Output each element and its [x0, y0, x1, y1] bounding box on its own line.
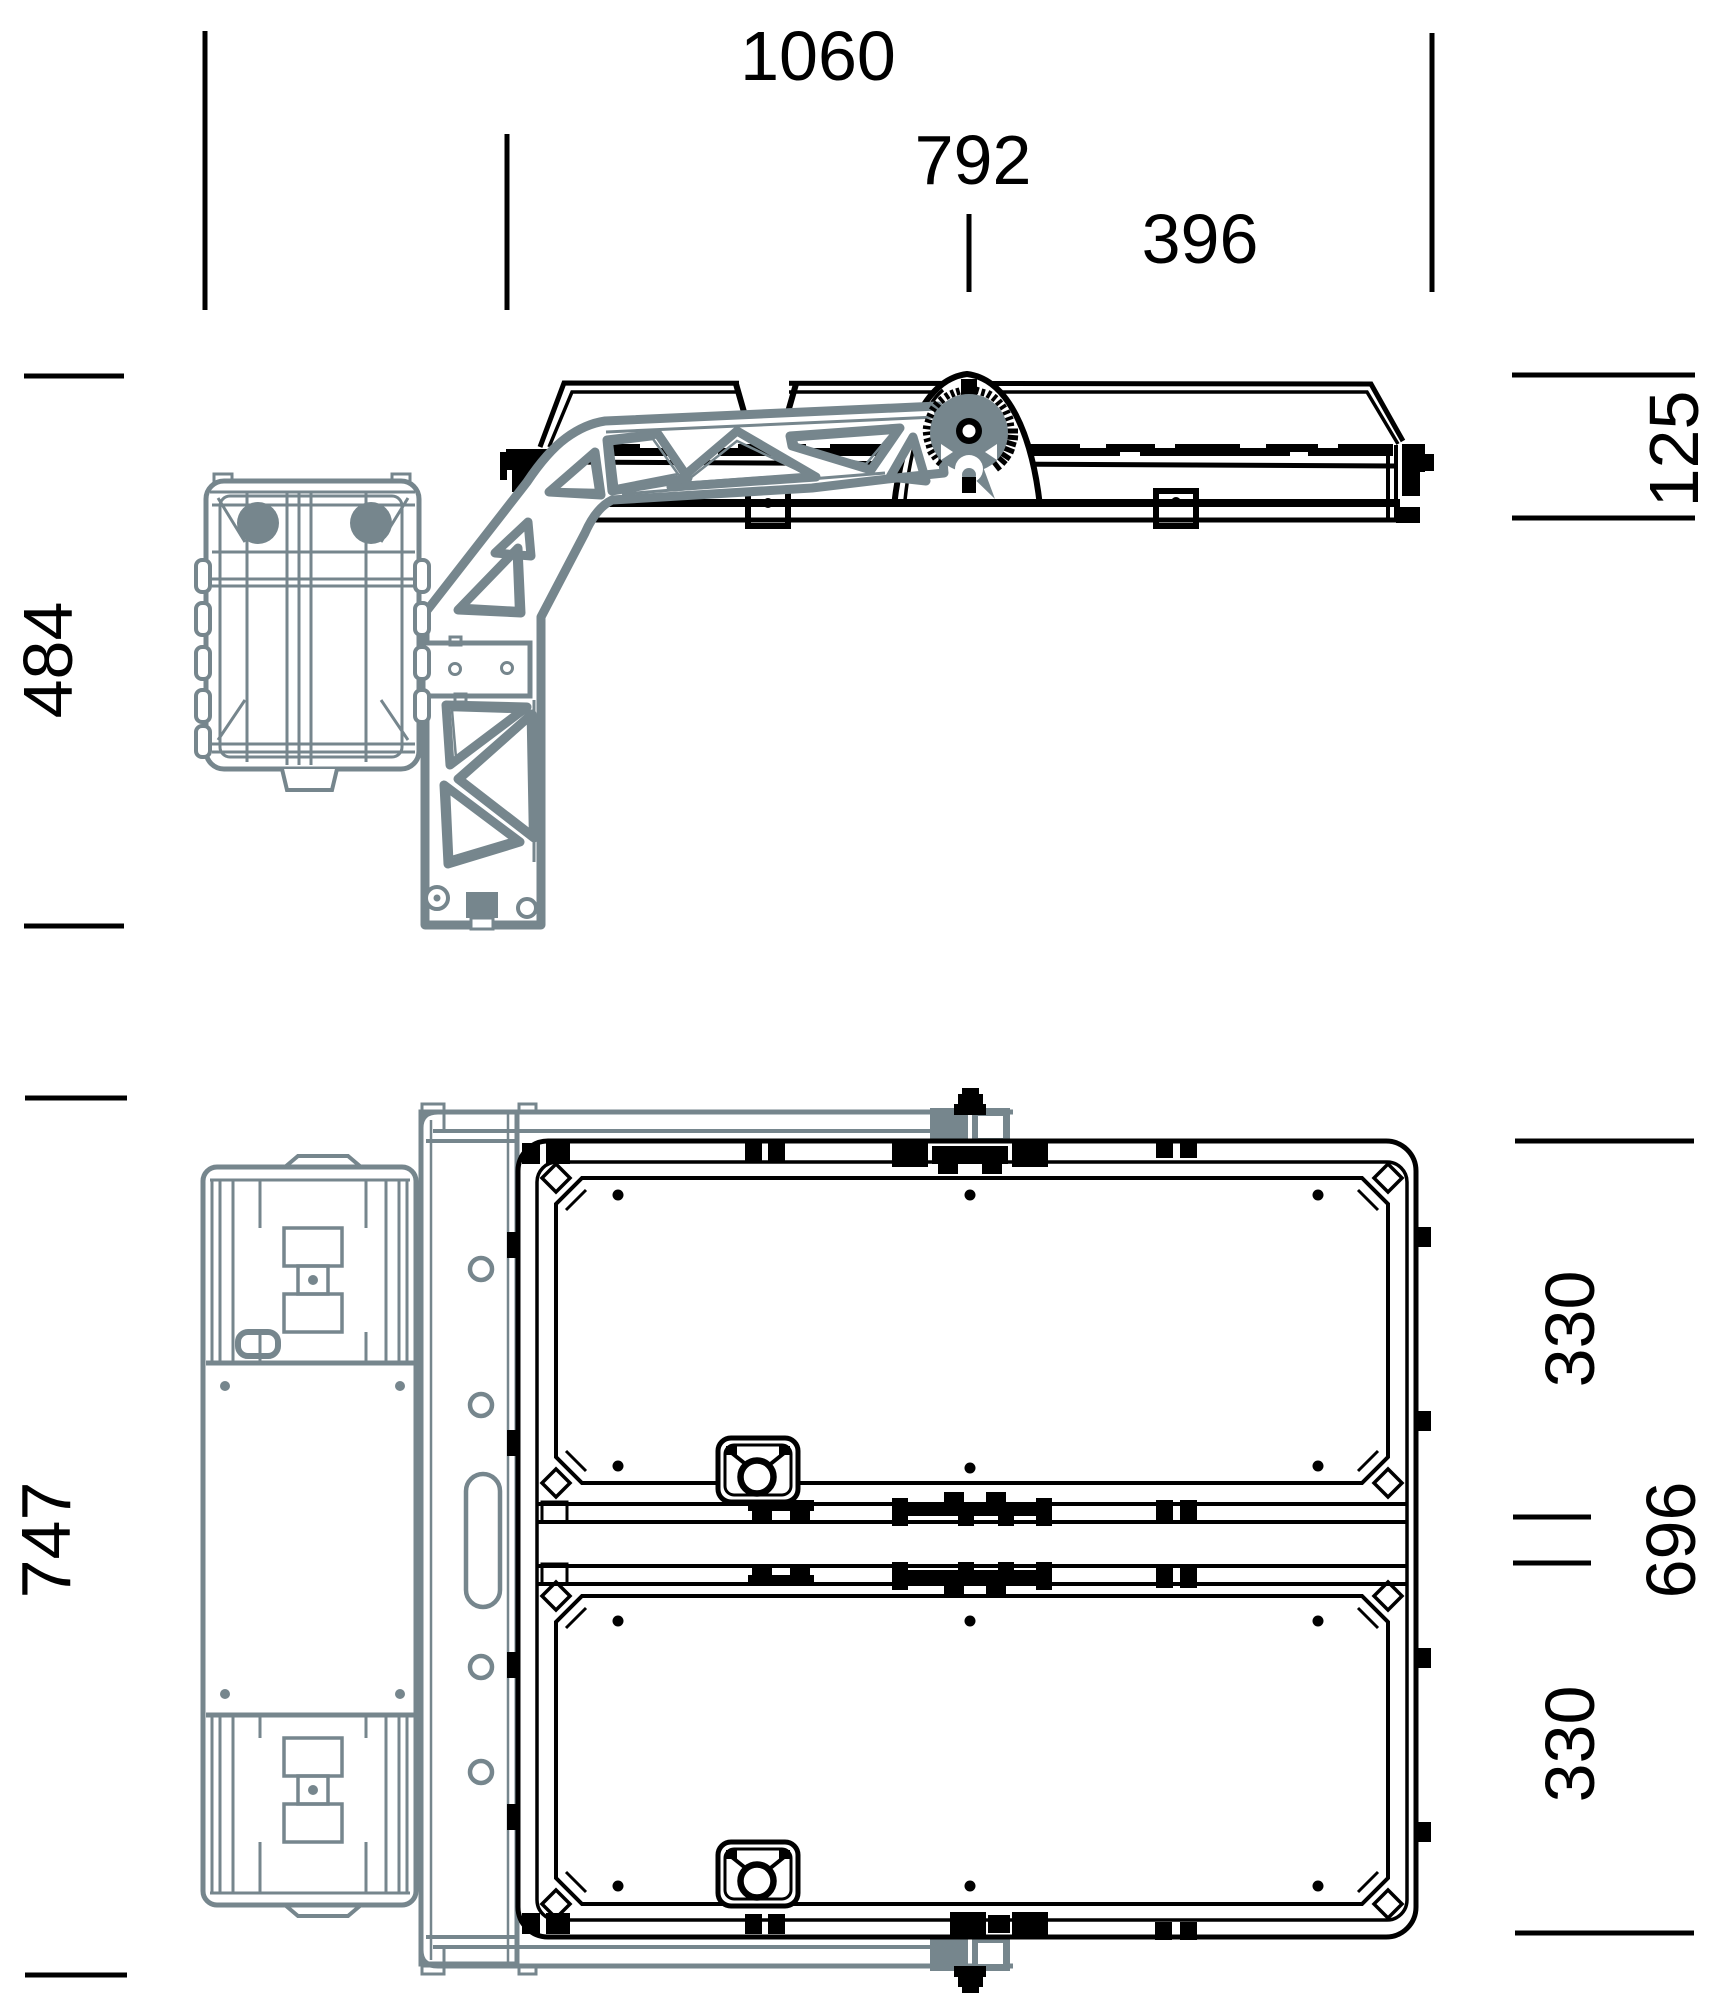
- svg-text:1060: 1060: [740, 17, 896, 95]
- svg-text:396: 396: [1142, 200, 1259, 278]
- svg-text:696: 696: [1632, 1482, 1710, 1599]
- svg-text:330: 330: [1531, 1271, 1609, 1388]
- svg-text:330: 330: [1531, 1686, 1609, 1803]
- svg-text:747: 747: [7, 1482, 85, 1599]
- svg-text:125: 125: [1635, 391, 1713, 508]
- svg-text:792: 792: [915, 121, 1032, 199]
- svg-text:484: 484: [9, 602, 87, 719]
